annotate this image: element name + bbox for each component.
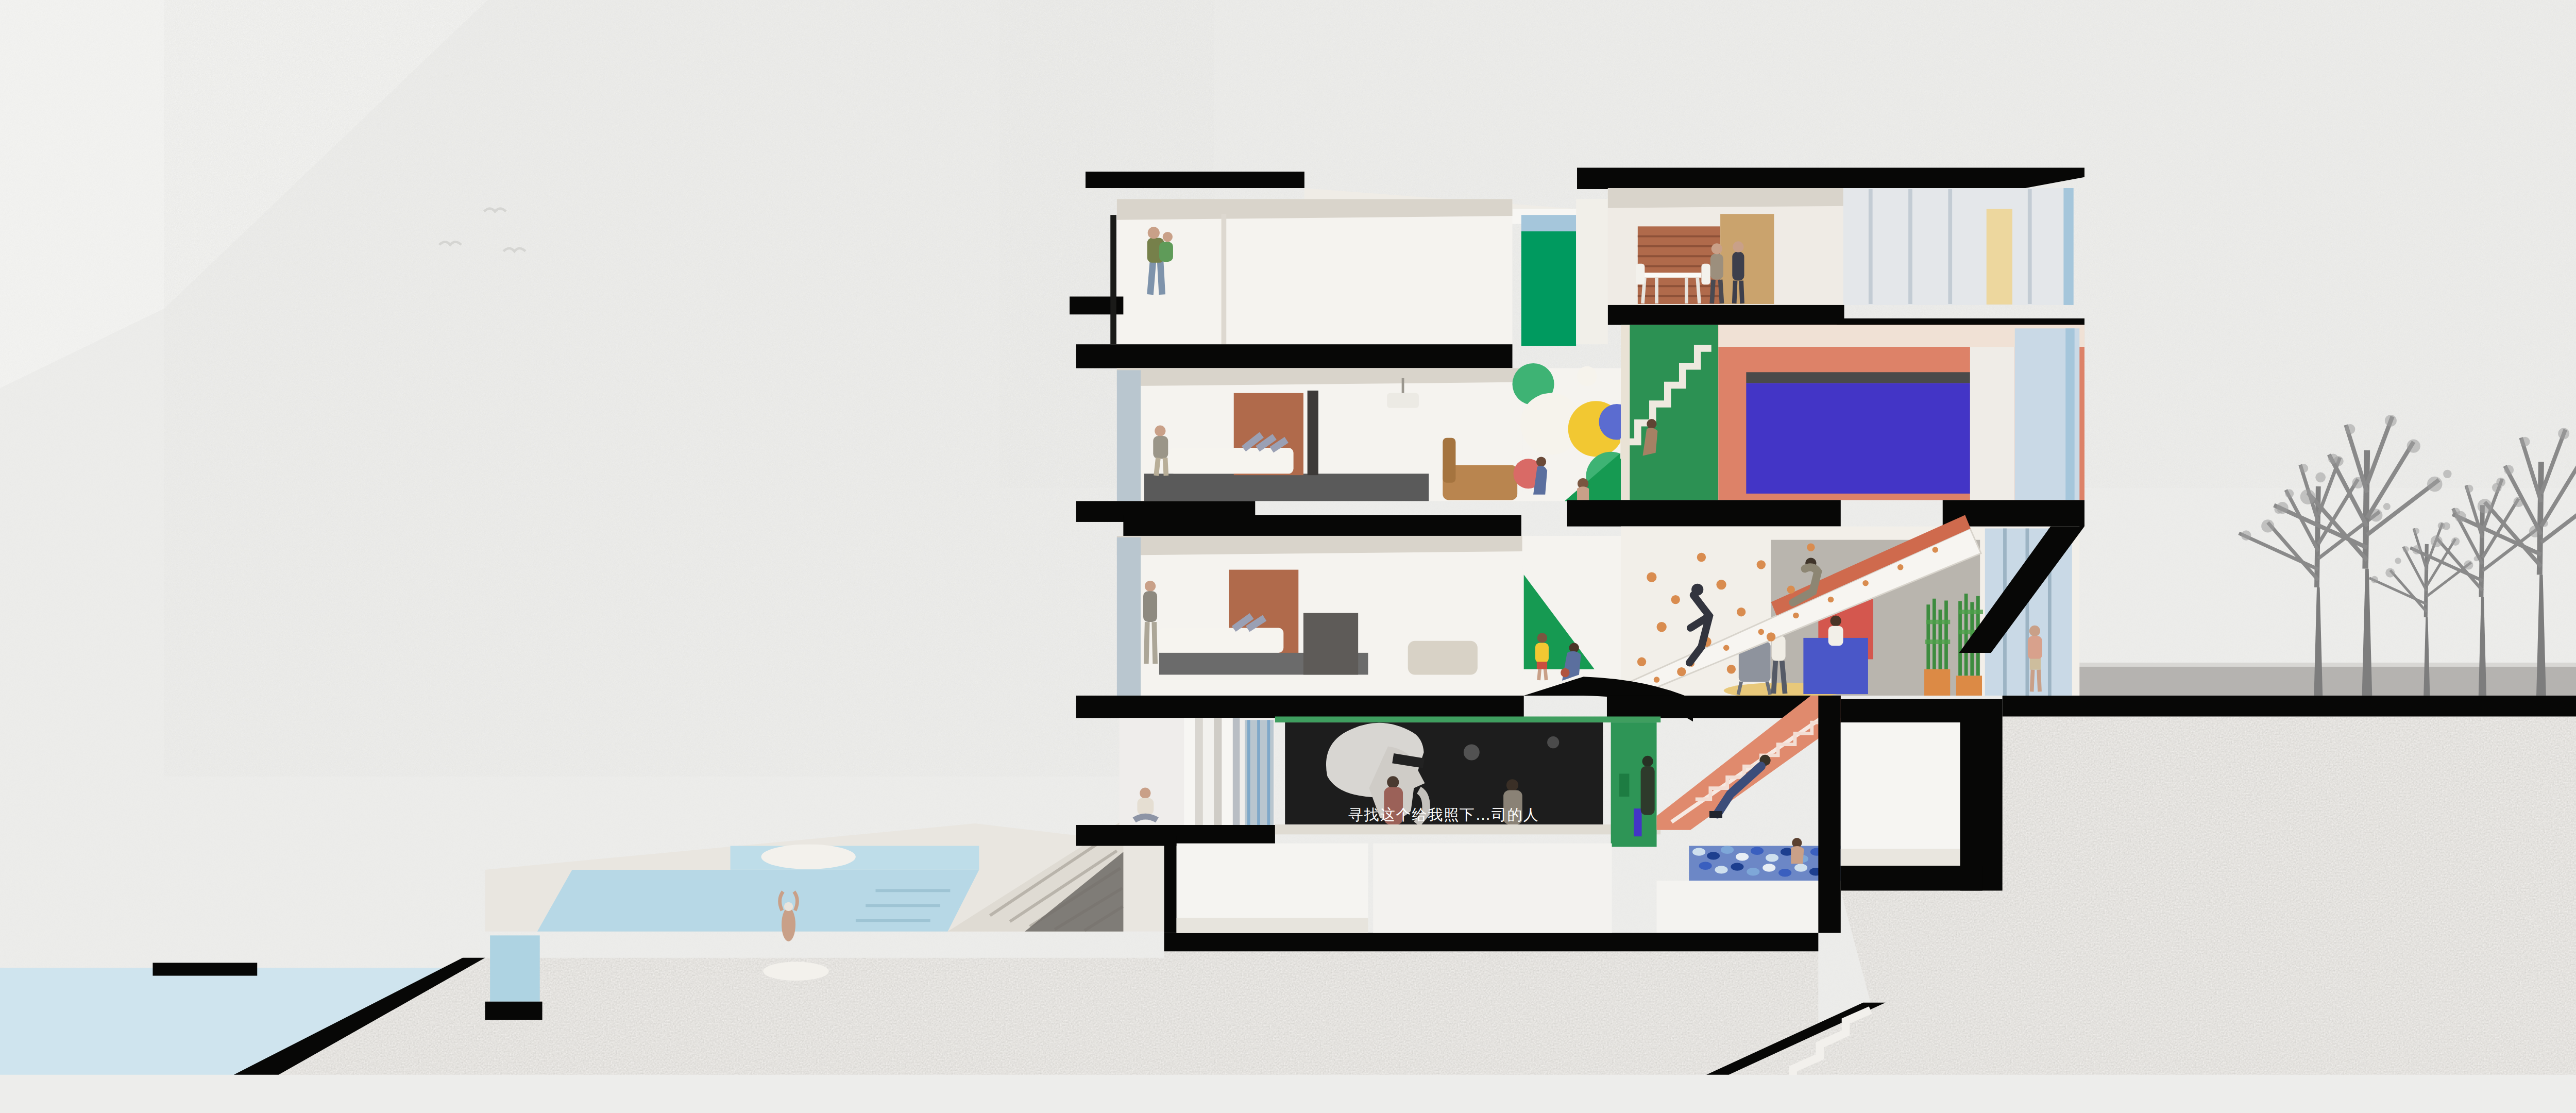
- person-receptionist: [1828, 615, 1843, 646]
- cinema-green-header: [1275, 716, 1660, 722]
- top-floor-wall-joint: [1222, 214, 1227, 344]
- cinema-floor: [1275, 824, 1660, 834]
- pool-float-island: [763, 962, 828, 981]
- reception-counter: [1803, 638, 1868, 694]
- basement-slab-cut: [1164, 933, 1819, 952]
- street-cut-line: [2003, 696, 2576, 717]
- sidewalk-plane: [2003, 663, 2576, 696]
- basement-room: [1373, 844, 1612, 933]
- floor-slab: [1123, 515, 1521, 536]
- cream-wall-sliver: [1987, 209, 2012, 305]
- lounge-partition: [1970, 347, 2015, 500]
- architectural-section-rendering: 寻找这个给我照下…司的人: [0, 0, 2576, 1075]
- bed: [1159, 628, 1283, 653]
- wall-cut-vertical: [1960, 699, 2003, 891]
- blue-window: [1634, 808, 1641, 836]
- stair-trim: [1621, 325, 1630, 500]
- stair-core-green-glass: [1521, 231, 1576, 346]
- clerestory-glass: [1521, 215, 1576, 231]
- sofa-arm: [1443, 438, 1455, 483]
- bed-platform: [1144, 474, 1429, 501]
- royal-blue-panel: [1746, 383, 1970, 494]
- subtitle-text: 寻找这个给我照下…司的人: [1348, 806, 1539, 823]
- sunken-court-room: [1841, 722, 1960, 866]
- green-window: [1619, 774, 1629, 797]
- pool-main-water: [537, 870, 979, 932]
- waterline-cut-line: [152, 963, 257, 975]
- facade-glass-edge: [2063, 188, 2073, 305]
- tv-panel: [1308, 391, 1318, 475]
- portrait-glasses: [1393, 758, 1424, 764]
- bokeh-dot: [1464, 745, 1480, 761]
- bokeh-dot: [1547, 736, 1559, 748]
- bedroom2-window-glass: [1117, 537, 1141, 696]
- pool-float-island: [761, 845, 855, 869]
- roof-slab-right: [1577, 167, 2084, 189]
- court-bottom-cut: [1841, 866, 1982, 890]
- cinema-projection: 寻找这个给我照下…司的人: [1285, 722, 1603, 824]
- floor-slab: [1076, 344, 1513, 368]
- lounge-chair: [1408, 641, 1478, 675]
- porch-slat-columns: [1184, 718, 1240, 825]
- floor-slab: [1567, 500, 1841, 526]
- wall-cut-vertical: [1164, 836, 1177, 933]
- floor-slab: [1608, 305, 1844, 325]
- sidewalk-edge-highlight: [2003, 663, 2576, 667]
- dresser: [1303, 613, 1358, 675]
- basement-floor: [1177, 918, 1368, 933]
- court-floor: [1841, 849, 1960, 866]
- lounge-glass-edge: [2065, 328, 2074, 500]
- blue-recess-header: [1746, 372, 1970, 383]
- bedroom1-window-glass: [1117, 370, 1141, 501]
- wall-cut-vertical: [1818, 696, 1840, 933]
- ballpit-plinth: [1657, 881, 1841, 933]
- pool-tank-cut-line: [485, 1002, 542, 1020]
- pool-tank-section: [490, 935, 540, 1001]
- section-canvas: 寻找这个给我照下…司的人: [0, 0, 2576, 1075]
- core-wall: [1576, 199, 1608, 344]
- balloon-wall: [1512, 363, 1635, 501]
- roof-slab-left: [1086, 172, 1304, 188]
- facade-column: [1110, 215, 1116, 344]
- top-floor-room: [1117, 199, 1513, 344]
- balloon-white: [1577, 366, 1597, 386]
- dining-wood-panel: [1720, 214, 1774, 304]
- top-hall-glass-zone: [1843, 188, 2072, 305]
- floor-slab: [1076, 696, 1524, 718]
